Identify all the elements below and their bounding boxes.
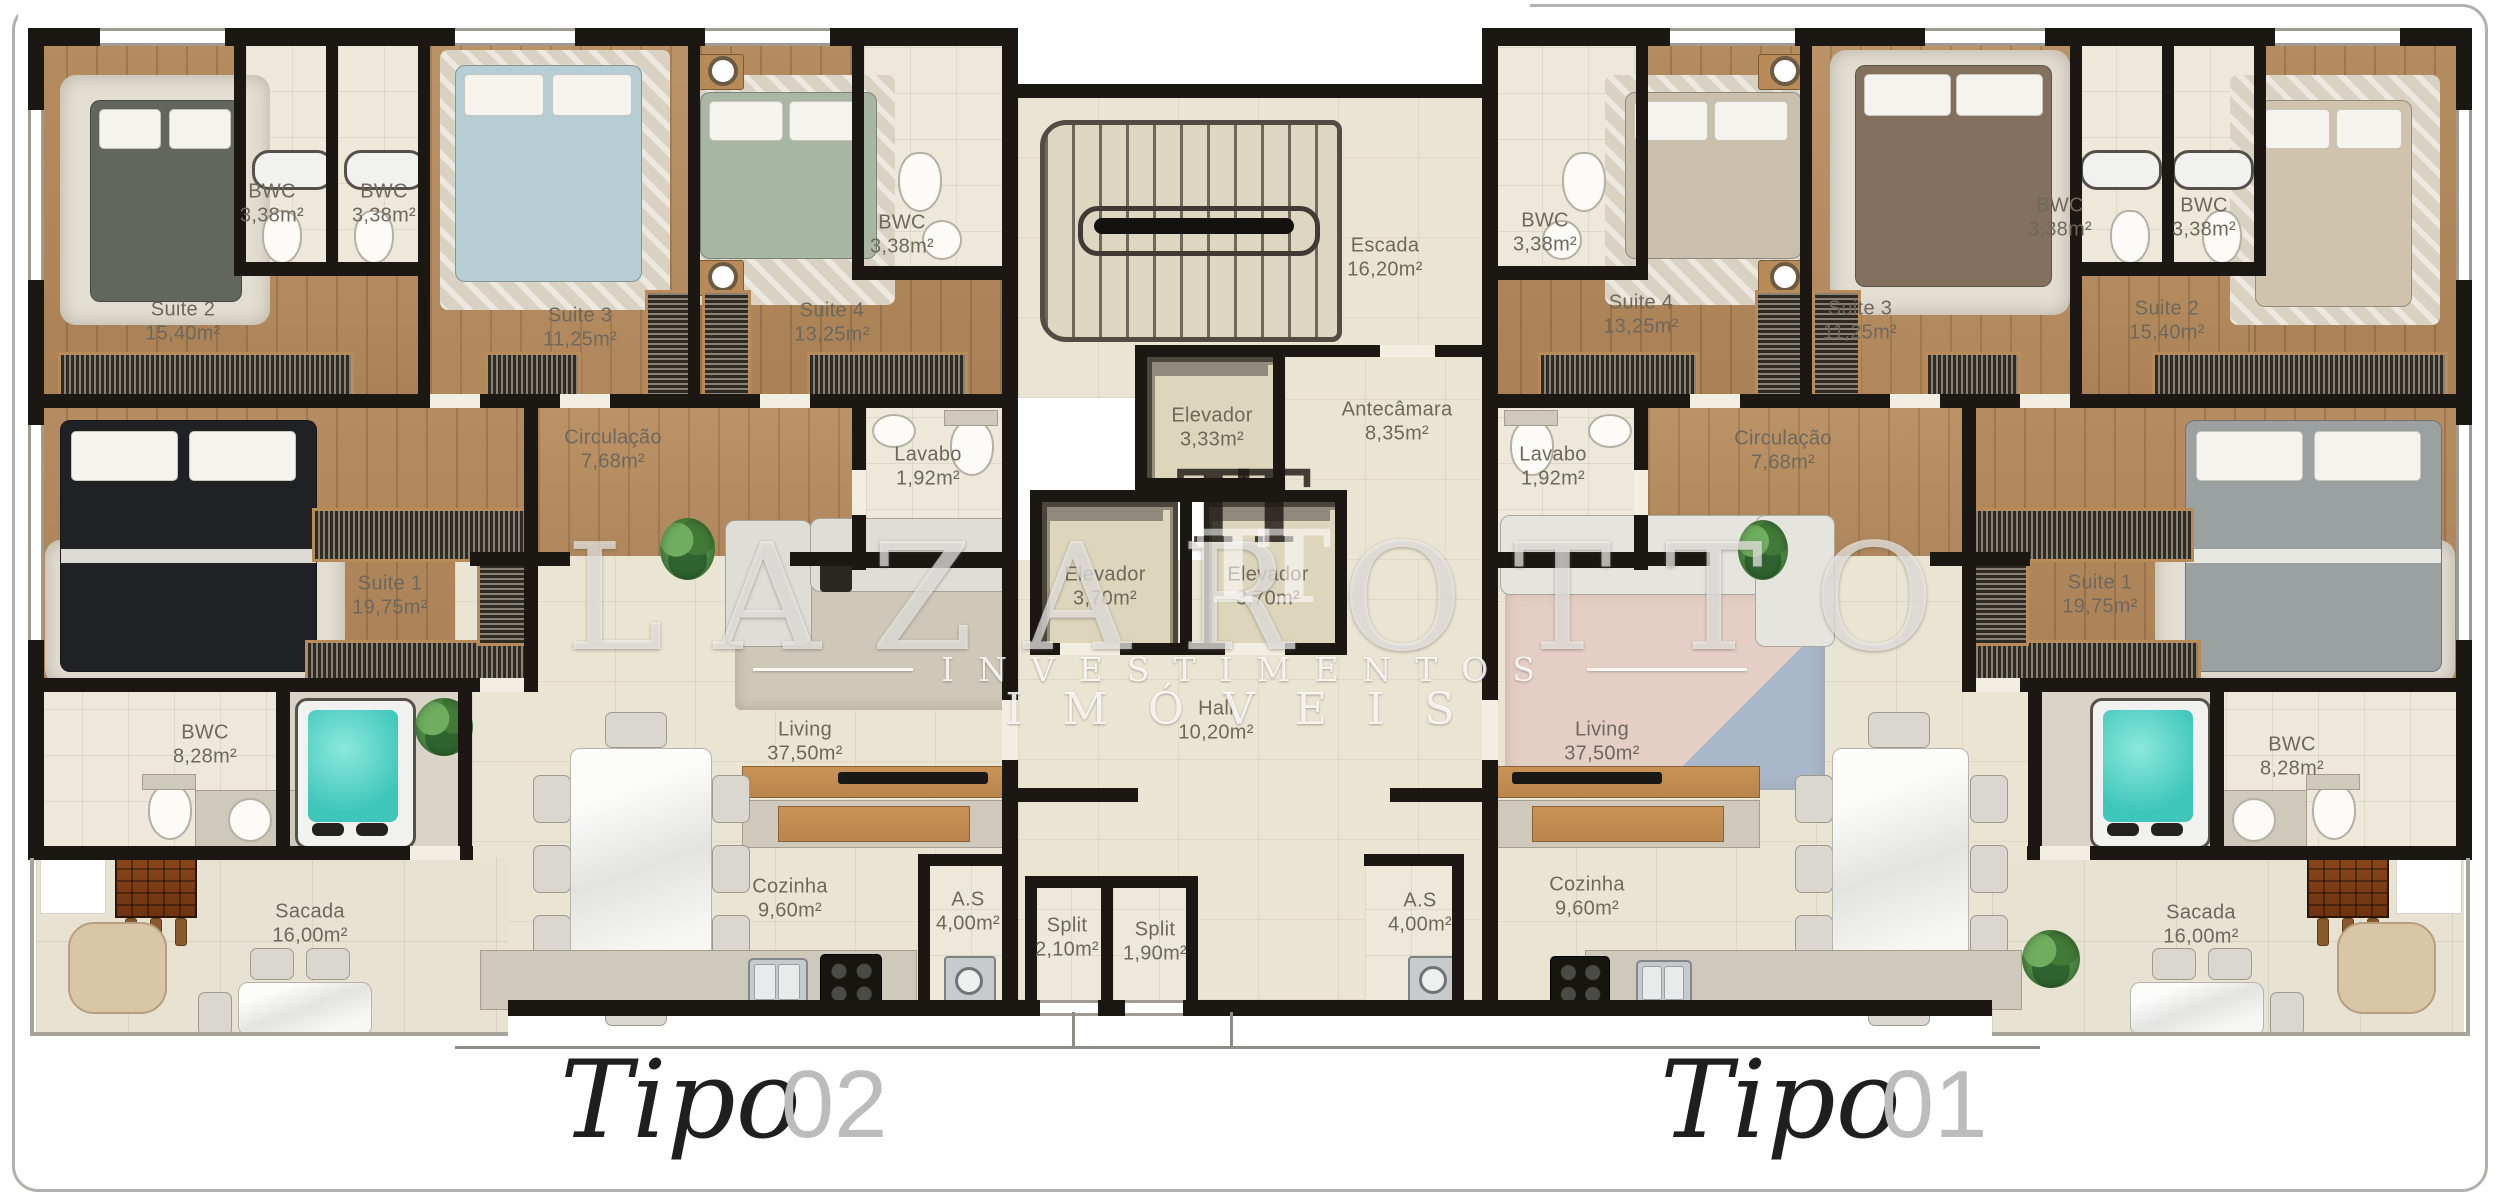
wall xyxy=(524,394,538,692)
balcony-glass-rail xyxy=(2466,858,2470,1036)
pillow xyxy=(1956,74,2043,116)
label-suite1-left: Suite 119,75m² xyxy=(352,572,427,619)
label-hall: Hall10,20m² xyxy=(1178,697,1253,744)
room-name: BWC xyxy=(870,211,934,235)
washer-drum xyxy=(955,967,983,995)
wall xyxy=(1335,490,1347,655)
wardrobe xyxy=(702,290,751,406)
jacuzzi-water xyxy=(2103,710,2193,822)
island-cabinet xyxy=(1532,806,1724,842)
label-suite2-left: Suite 215,40m² xyxy=(145,298,220,345)
pillow xyxy=(169,109,231,149)
bed xyxy=(1625,92,1802,259)
room-name: Suite 4 xyxy=(794,299,869,323)
chair xyxy=(306,948,350,980)
room-name: Suite 2 xyxy=(145,298,220,322)
room-name: BWC xyxy=(1513,209,1577,233)
plant xyxy=(2022,930,2080,988)
chair xyxy=(1795,845,1833,893)
room-area: 37,50m² xyxy=(1564,742,1639,766)
wall xyxy=(470,552,570,566)
door-gap xyxy=(430,394,480,408)
wall xyxy=(1496,266,1648,280)
room-name: Circulação xyxy=(564,426,661,450)
door-gap xyxy=(1002,700,1018,760)
room-name: Lavabo xyxy=(894,443,961,467)
wall xyxy=(1484,394,2472,408)
chair xyxy=(1970,775,2008,823)
room-area: 13,25m² xyxy=(794,323,869,347)
door-gap xyxy=(560,394,610,408)
label-bwc-a-right: BWC3,38m² xyxy=(2028,194,2092,241)
room-name: BWC xyxy=(2028,194,2092,218)
bed xyxy=(455,65,642,282)
room-name: Elevador xyxy=(1227,563,1308,587)
room-area: 1,92m² xyxy=(894,467,961,491)
room-name: BWC xyxy=(240,180,304,204)
wall xyxy=(918,854,930,1002)
bed-sheet xyxy=(2186,549,2441,563)
wall xyxy=(1180,490,1192,655)
pillow xyxy=(2196,431,2303,481)
toilet xyxy=(148,784,192,840)
label-elevador-2: Elevador3,70m² xyxy=(1064,563,1145,610)
label-living-right: Living37,50m² xyxy=(1564,718,1639,765)
unit-script-text: Tipo xyxy=(1660,1038,1901,1163)
label-as-right: A.S4,00m² xyxy=(1388,889,1452,936)
label-bwc-master-left: BWC8,28m² xyxy=(173,721,237,768)
window xyxy=(1040,1000,1098,1016)
room-area: 2,10m² xyxy=(1035,938,1099,962)
room-name: Circulação xyxy=(1734,427,1831,451)
plant xyxy=(1738,520,1788,580)
wall xyxy=(2027,846,2472,860)
fireplace xyxy=(2307,856,2389,918)
wall xyxy=(1496,552,1710,566)
wall xyxy=(1002,28,1018,1016)
label-split-b: Split1,90m² xyxy=(1123,918,1187,965)
label-living-left: Living37,50m² xyxy=(767,718,842,765)
label-sacada-right: Sacada16,00m² xyxy=(2163,901,2238,948)
toilet xyxy=(898,152,942,212)
wardrobe xyxy=(305,640,536,682)
lounge-chair xyxy=(2337,922,2436,1014)
room-name: Sacada xyxy=(2163,901,2238,925)
jacuzzi-headrest xyxy=(356,823,388,836)
divider-tick xyxy=(1230,1012,1233,1046)
chair xyxy=(1795,775,1833,823)
room-area: 8,35m² xyxy=(1342,422,1453,446)
pillow xyxy=(1864,74,1951,116)
room-name: BWC xyxy=(2172,194,2236,218)
label-lavabo-right: Lavabo1,92m² xyxy=(1519,443,1586,490)
wall xyxy=(1018,788,1138,802)
room-area: 10,20m² xyxy=(1178,721,1253,745)
label-elevador-1: Elevador3,33m² xyxy=(1171,404,1252,451)
label-bwc-b-left: BWC3,38m² xyxy=(352,180,416,227)
sink-basin xyxy=(1642,966,1662,1000)
label-bwc-suite4-left: BWC3,38m² xyxy=(870,211,934,258)
room-name: Hall xyxy=(1178,697,1253,721)
wall xyxy=(1962,394,1976,692)
chair xyxy=(712,845,750,893)
wall xyxy=(28,394,1016,408)
label-escada: Escada16,20m² xyxy=(1347,234,1422,281)
room-area: 15,40m² xyxy=(145,322,220,346)
bed xyxy=(700,92,877,259)
plant xyxy=(660,518,715,580)
toilet xyxy=(1562,152,1606,212)
label-suite2-right: Suite 215,40m² xyxy=(2129,297,2204,344)
unit-number-text: 02 xyxy=(781,1051,888,1158)
room-area: 1,90m² xyxy=(1123,942,1187,966)
room-area: 3,38m² xyxy=(870,235,934,259)
wall xyxy=(276,690,290,848)
room-area: 3,38m² xyxy=(240,204,304,228)
elevator-doorband xyxy=(1209,507,1330,521)
unit-script-text: Tipo xyxy=(560,1038,801,1163)
label-suite4-right: Suite 413,25m² xyxy=(1603,291,1678,338)
wall xyxy=(458,690,472,858)
chair xyxy=(1868,712,1930,748)
elevator-doorband xyxy=(1047,507,1163,521)
label-bwc-b-right: BWC3,38m² xyxy=(2172,194,2236,241)
wall xyxy=(1636,28,1648,278)
room-area: 3,38m² xyxy=(352,204,416,228)
room-name: Elevador xyxy=(1171,404,1252,428)
chair xyxy=(2270,992,2304,1036)
wall xyxy=(918,854,1014,866)
wall xyxy=(234,262,430,276)
lamp xyxy=(1770,262,1800,292)
room-name: Cozinha xyxy=(1549,873,1624,897)
pillow xyxy=(1714,101,1788,141)
label-bwc-a-left: BWC3,38m² xyxy=(240,180,304,227)
page-border-occluder xyxy=(18,0,1530,26)
toilet-tank xyxy=(1504,410,1558,426)
wall xyxy=(2070,262,2266,276)
balcony-glass-rail xyxy=(30,1032,508,1036)
wardrobe xyxy=(1970,640,2201,682)
label-lavabo-left: Lavabo1,92m² xyxy=(894,443,961,490)
door-gap xyxy=(1690,394,1740,408)
door-gap xyxy=(852,470,866,515)
wall xyxy=(1930,552,2030,566)
room-name: Antecâmara xyxy=(1342,398,1453,422)
toilet-tank xyxy=(142,774,196,790)
wall xyxy=(852,266,1004,280)
bed xyxy=(2185,420,2442,672)
toilet-tank xyxy=(944,410,998,426)
room-area: 11,25m² xyxy=(543,328,617,352)
chair xyxy=(712,775,750,823)
wall xyxy=(326,28,338,276)
pillow xyxy=(709,101,783,141)
chair xyxy=(250,948,294,980)
window xyxy=(2275,28,2400,46)
window xyxy=(2456,425,2472,640)
wall xyxy=(234,28,246,276)
room-area: 4,00m² xyxy=(936,912,1000,936)
wall xyxy=(1135,345,1285,357)
firewood xyxy=(175,918,187,946)
window xyxy=(28,110,44,280)
room-name: Sacada xyxy=(272,900,347,924)
wall xyxy=(508,1000,1992,1016)
room-name: Split xyxy=(1123,918,1187,942)
label-split-a: Split2,10m² xyxy=(1035,914,1099,961)
lounge-chair xyxy=(68,922,167,1014)
room-area: 7,68m² xyxy=(564,450,661,474)
lamp xyxy=(708,56,738,86)
room-name: Suite 4 xyxy=(1603,291,1678,315)
room-name: Suite 3 xyxy=(1823,297,1897,321)
wall xyxy=(1390,788,1490,802)
room-name: Suite 1 xyxy=(352,572,427,596)
jacuzzi xyxy=(2090,698,2211,849)
door-gap xyxy=(480,678,524,692)
door-gap xyxy=(1890,394,1940,408)
divider-tick xyxy=(1072,1012,1075,1046)
pillow xyxy=(189,431,296,481)
window xyxy=(1125,1000,1183,1016)
island-cabinet xyxy=(778,806,970,842)
stair-handrail-core xyxy=(1094,218,1294,234)
pillow xyxy=(99,109,161,149)
jacuzzi xyxy=(295,698,416,849)
duct-shaft xyxy=(2396,856,2462,914)
room-area: 15,40m² xyxy=(2129,321,2204,345)
pillow xyxy=(2336,109,2402,149)
room-name: Elevador xyxy=(1064,563,1145,587)
chair xyxy=(1970,845,2008,893)
room-area: 13,25m² xyxy=(1603,315,1678,339)
label-elevador-3: Elevador3,70m² xyxy=(1227,563,1308,610)
chair xyxy=(605,712,667,748)
wall xyxy=(1018,84,1490,98)
window xyxy=(455,28,575,46)
room-area: 16,00m² xyxy=(2163,925,2238,949)
pillow xyxy=(552,74,632,116)
unit-label-tipo-02: Tipo02 xyxy=(560,1038,888,1163)
chair xyxy=(198,992,232,1036)
lamp xyxy=(708,262,738,292)
tv xyxy=(1512,772,1662,784)
wardrobe xyxy=(645,290,694,406)
tv xyxy=(838,772,988,784)
door-gap xyxy=(1225,643,1285,655)
wall xyxy=(28,846,473,860)
outdoor-table xyxy=(2130,982,2264,1036)
bed xyxy=(90,100,242,302)
window xyxy=(1670,28,1795,46)
elevator-doorband xyxy=(1152,362,1268,376)
jacuzzi-headrest xyxy=(312,823,344,836)
wall xyxy=(688,28,700,394)
fireplace xyxy=(115,856,197,918)
room-area: 8,28m² xyxy=(173,745,237,769)
room-area: 16,00m² xyxy=(272,924,347,948)
room-area: 16,20m² xyxy=(1347,258,1422,282)
door-gap xyxy=(2020,394,2070,408)
balcony-glass-rail xyxy=(30,858,34,1036)
sofa xyxy=(725,520,812,647)
pillow xyxy=(71,431,178,481)
room-name: BWC xyxy=(173,721,237,745)
chair xyxy=(533,775,571,823)
washer-drum xyxy=(1419,966,1447,994)
wall xyxy=(1030,490,1042,655)
door-gap xyxy=(410,846,460,860)
window xyxy=(100,28,225,46)
firewood xyxy=(2317,918,2329,946)
bed-sheet xyxy=(61,549,316,563)
pillow xyxy=(2264,109,2330,149)
label-suite4-left: Suite 413,25m² xyxy=(794,299,869,346)
wall xyxy=(852,28,864,278)
label-suite3-right: Suite 311,25m² xyxy=(1823,297,1897,344)
room-name: Escada xyxy=(1347,234,1422,258)
room-name: Suite 3 xyxy=(543,304,617,328)
toilet xyxy=(2110,210,2150,264)
window xyxy=(2456,110,2472,280)
wall xyxy=(1800,28,1812,394)
wardrobe xyxy=(1970,556,2029,646)
door-gap xyxy=(760,394,810,408)
chair xyxy=(2152,948,2196,980)
room-area: 9,60m² xyxy=(1549,897,1624,921)
room-area: 1,92m² xyxy=(1519,467,1586,491)
lamp xyxy=(1770,56,1800,86)
room-area: 4,00m² xyxy=(1388,913,1452,937)
duct-shaft xyxy=(40,856,106,914)
wall xyxy=(2028,690,2042,858)
room-name: A.S xyxy=(1388,889,1452,913)
pillow xyxy=(464,74,544,116)
label-as-left: A.S4,00m² xyxy=(936,888,1000,935)
unit-number-text: 01 xyxy=(1881,1051,1988,1158)
sink xyxy=(228,798,272,842)
room-name: Living xyxy=(1564,718,1639,742)
wall xyxy=(2210,690,2224,848)
jacuzzi-headrest xyxy=(2107,823,2139,836)
bed xyxy=(1855,65,2052,287)
room-area: 11,25m² xyxy=(1823,321,1897,345)
sink-basin xyxy=(754,964,776,1000)
wall xyxy=(2254,28,2266,276)
outdoor-table xyxy=(238,982,372,1036)
sink-basin xyxy=(778,964,800,1000)
wall xyxy=(1482,28,1498,1016)
room-name: BWC xyxy=(2260,733,2324,757)
label-circulacao-left: Circulação7,68m² xyxy=(564,426,661,473)
label-circulacao-right: Circulação7,68m² xyxy=(1734,427,1831,474)
balcony-glass-rail xyxy=(1992,1032,2470,1036)
window xyxy=(1925,28,2045,46)
door-gap xyxy=(1060,643,1120,655)
room-area: 3,70m² xyxy=(1064,587,1145,611)
room-name: Split xyxy=(1035,914,1099,938)
door-gap xyxy=(2040,846,2090,860)
room-name: Suite 2 xyxy=(2129,297,2204,321)
floor-plan-page: Suite 215,40m² BWC3,38m² BWC3,38m² Suite… xyxy=(0,0,2500,1200)
room-area: 3,33m² xyxy=(1171,428,1252,452)
label-cozinha-left: Cozinha9,60m² xyxy=(752,875,827,922)
wall xyxy=(418,28,430,394)
room-area: 3,38m² xyxy=(2028,218,2092,242)
wall xyxy=(1273,345,1285,490)
label-bwc-suite4-right: BWC3,38m² xyxy=(1513,209,1577,256)
door-gap xyxy=(1634,470,1648,515)
room-area: 3,38m² xyxy=(1513,233,1577,257)
label-bwc-master-right: BWC8,28m² xyxy=(2260,733,2324,780)
room-area: 19,75m² xyxy=(2062,595,2137,619)
wall xyxy=(1186,876,1198,1012)
sink-basin xyxy=(1664,966,1684,1000)
room-area: 19,75m² xyxy=(352,596,427,620)
window xyxy=(705,28,830,46)
sink xyxy=(1588,414,1632,448)
bed xyxy=(2255,100,2412,307)
wall xyxy=(1452,854,1464,1002)
room-name: Cozinha xyxy=(752,875,827,899)
room-area: 3,38m² xyxy=(2172,218,2236,242)
unit-label-tipo-01: Tipo01 xyxy=(1660,1038,1988,1163)
door-gap xyxy=(1482,700,1498,760)
label-suite3-left: Suite 311,25m² xyxy=(543,304,617,351)
chair xyxy=(533,845,571,893)
room-area: 8,28m² xyxy=(2260,757,2324,781)
wall xyxy=(1101,876,1113,1012)
room-area: 3,70m² xyxy=(1227,587,1308,611)
chair xyxy=(2208,948,2252,980)
bathtub xyxy=(2080,150,2162,190)
label-sacada-left: Sacada16,00m² xyxy=(272,900,347,947)
wall xyxy=(1025,876,1113,888)
pillow xyxy=(2314,431,2421,481)
label-suite1-right: Suite 119,75m² xyxy=(2062,571,2137,618)
bed xyxy=(60,420,317,672)
label-cozinha-right: Cozinha9,60m² xyxy=(1549,873,1624,920)
bathtub xyxy=(2172,150,2254,190)
jacuzzi-water xyxy=(308,710,398,822)
wall xyxy=(790,552,1004,566)
room-area: 9,60m² xyxy=(752,899,827,923)
room-area: 37,50m² xyxy=(767,742,842,766)
room-area: 7,68m² xyxy=(1734,451,1831,475)
wall xyxy=(1135,345,1147,490)
room-name: BWC xyxy=(352,180,416,204)
room-name: Living xyxy=(767,718,842,742)
jacuzzi-headrest xyxy=(2151,823,2183,836)
toilet xyxy=(2312,784,2356,840)
door-gap xyxy=(1976,678,2020,692)
wall xyxy=(1135,478,1285,490)
room-name: A.S xyxy=(936,888,1000,912)
room-name: Lavabo xyxy=(1519,443,1586,467)
room-name: Suite 1 xyxy=(2062,571,2137,595)
door-gap xyxy=(1380,345,1435,357)
sink xyxy=(2232,798,2276,842)
wall xyxy=(1364,854,1464,866)
label-antecamara: Antecâmara8,35m² xyxy=(1342,398,1453,445)
window xyxy=(28,425,44,640)
wardrobe xyxy=(1755,290,1804,406)
